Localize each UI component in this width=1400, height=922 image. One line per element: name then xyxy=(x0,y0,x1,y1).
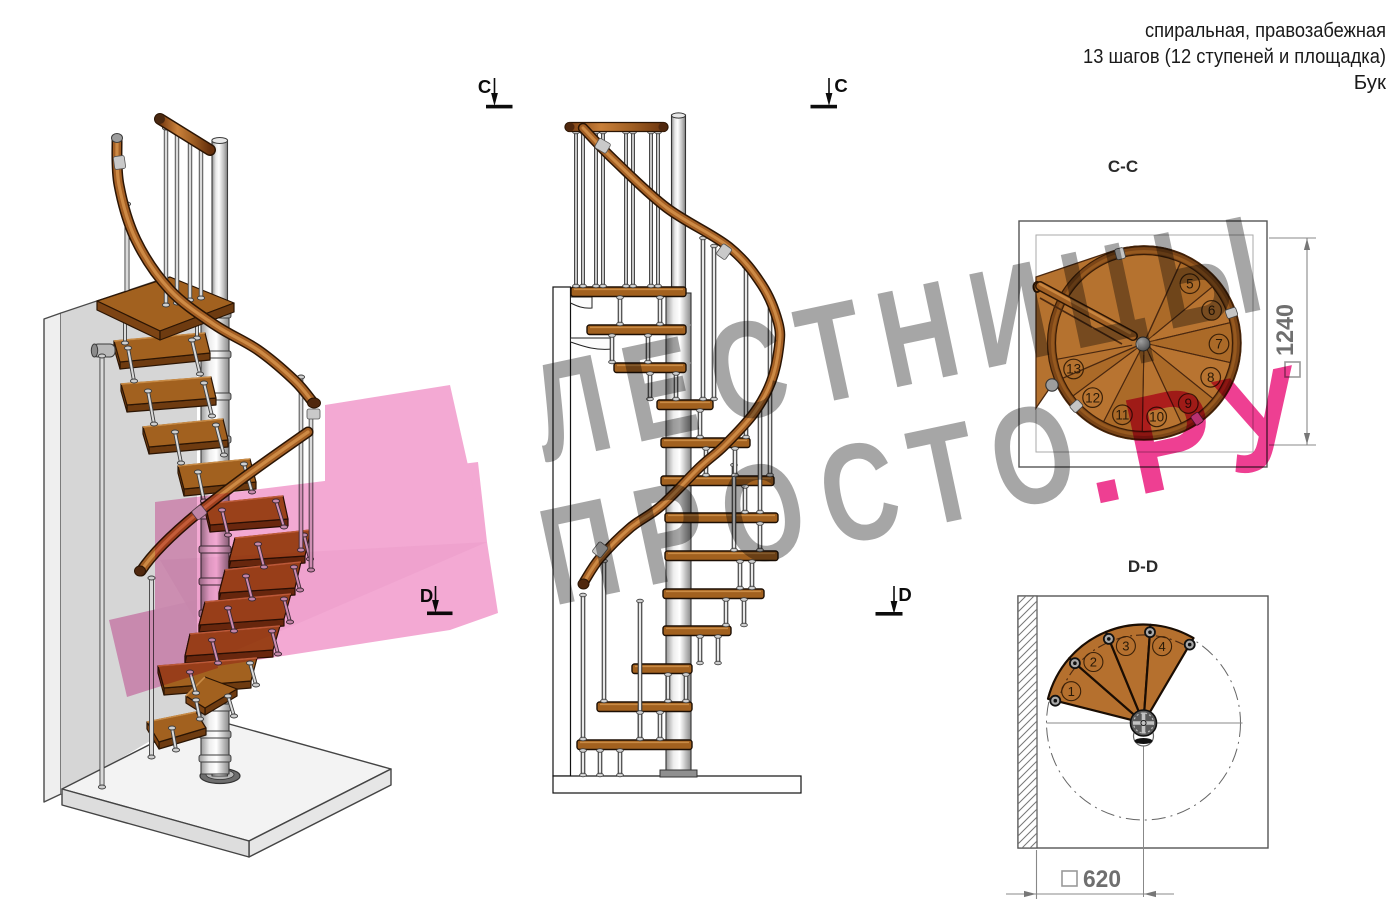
svg-text:4: 4 xyxy=(1158,639,1165,654)
svg-text:2: 2 xyxy=(1090,655,1097,670)
svg-text:1: 1 xyxy=(1068,684,1075,699)
svg-text:13 шагов (12 ступеней и площад: 13 шагов (12 ступеней и площадка) xyxy=(1083,45,1386,68)
svg-text:C-C: C-C xyxy=(1108,157,1138,176)
svg-text:3: 3 xyxy=(1122,639,1129,654)
svg-text:D-D: D-D xyxy=(1128,557,1158,576)
svg-text:Бук: Бук xyxy=(1354,71,1387,94)
svg-text:C: C xyxy=(478,76,491,97)
svg-text:D: D xyxy=(898,584,911,605)
svg-text:620: 620 xyxy=(1083,866,1121,893)
svg-text:спиральная, правозабежная: спиральная, правозабежная xyxy=(1145,19,1386,42)
svg-text:C: C xyxy=(834,75,847,96)
